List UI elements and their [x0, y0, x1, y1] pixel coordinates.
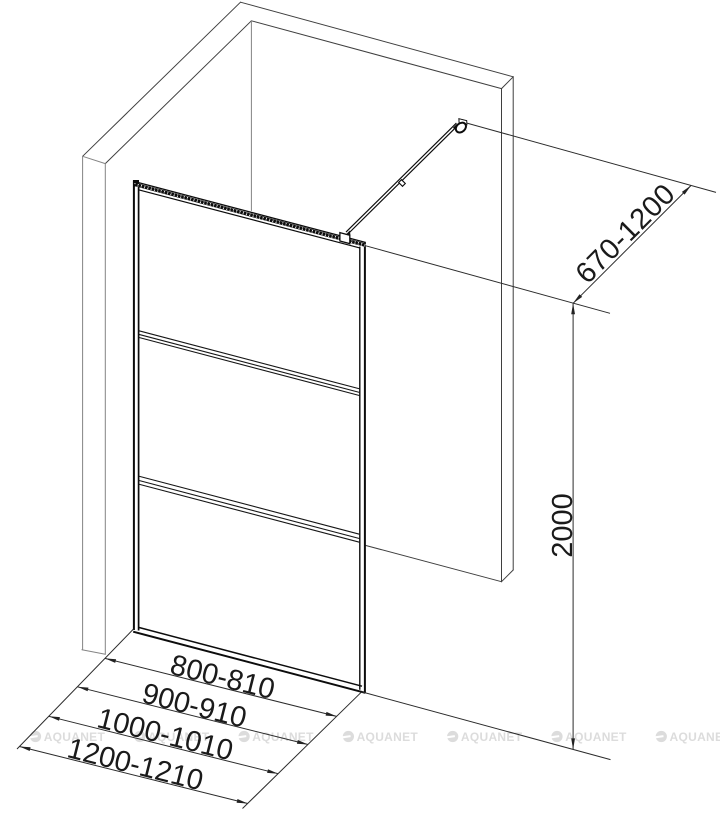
svg-text:AQUANET: AQUANET [357, 730, 419, 744]
svg-text:AQUANET: AQUANET [565, 730, 627, 744]
svg-text:AQUANET: AQUANET [670, 730, 720, 744]
svg-text:AQUANET: AQUANET [461, 730, 523, 744]
svg-text:AQUANET: AQUANET [252, 730, 314, 744]
svg-text:2000: 2000 [547, 493, 579, 558]
